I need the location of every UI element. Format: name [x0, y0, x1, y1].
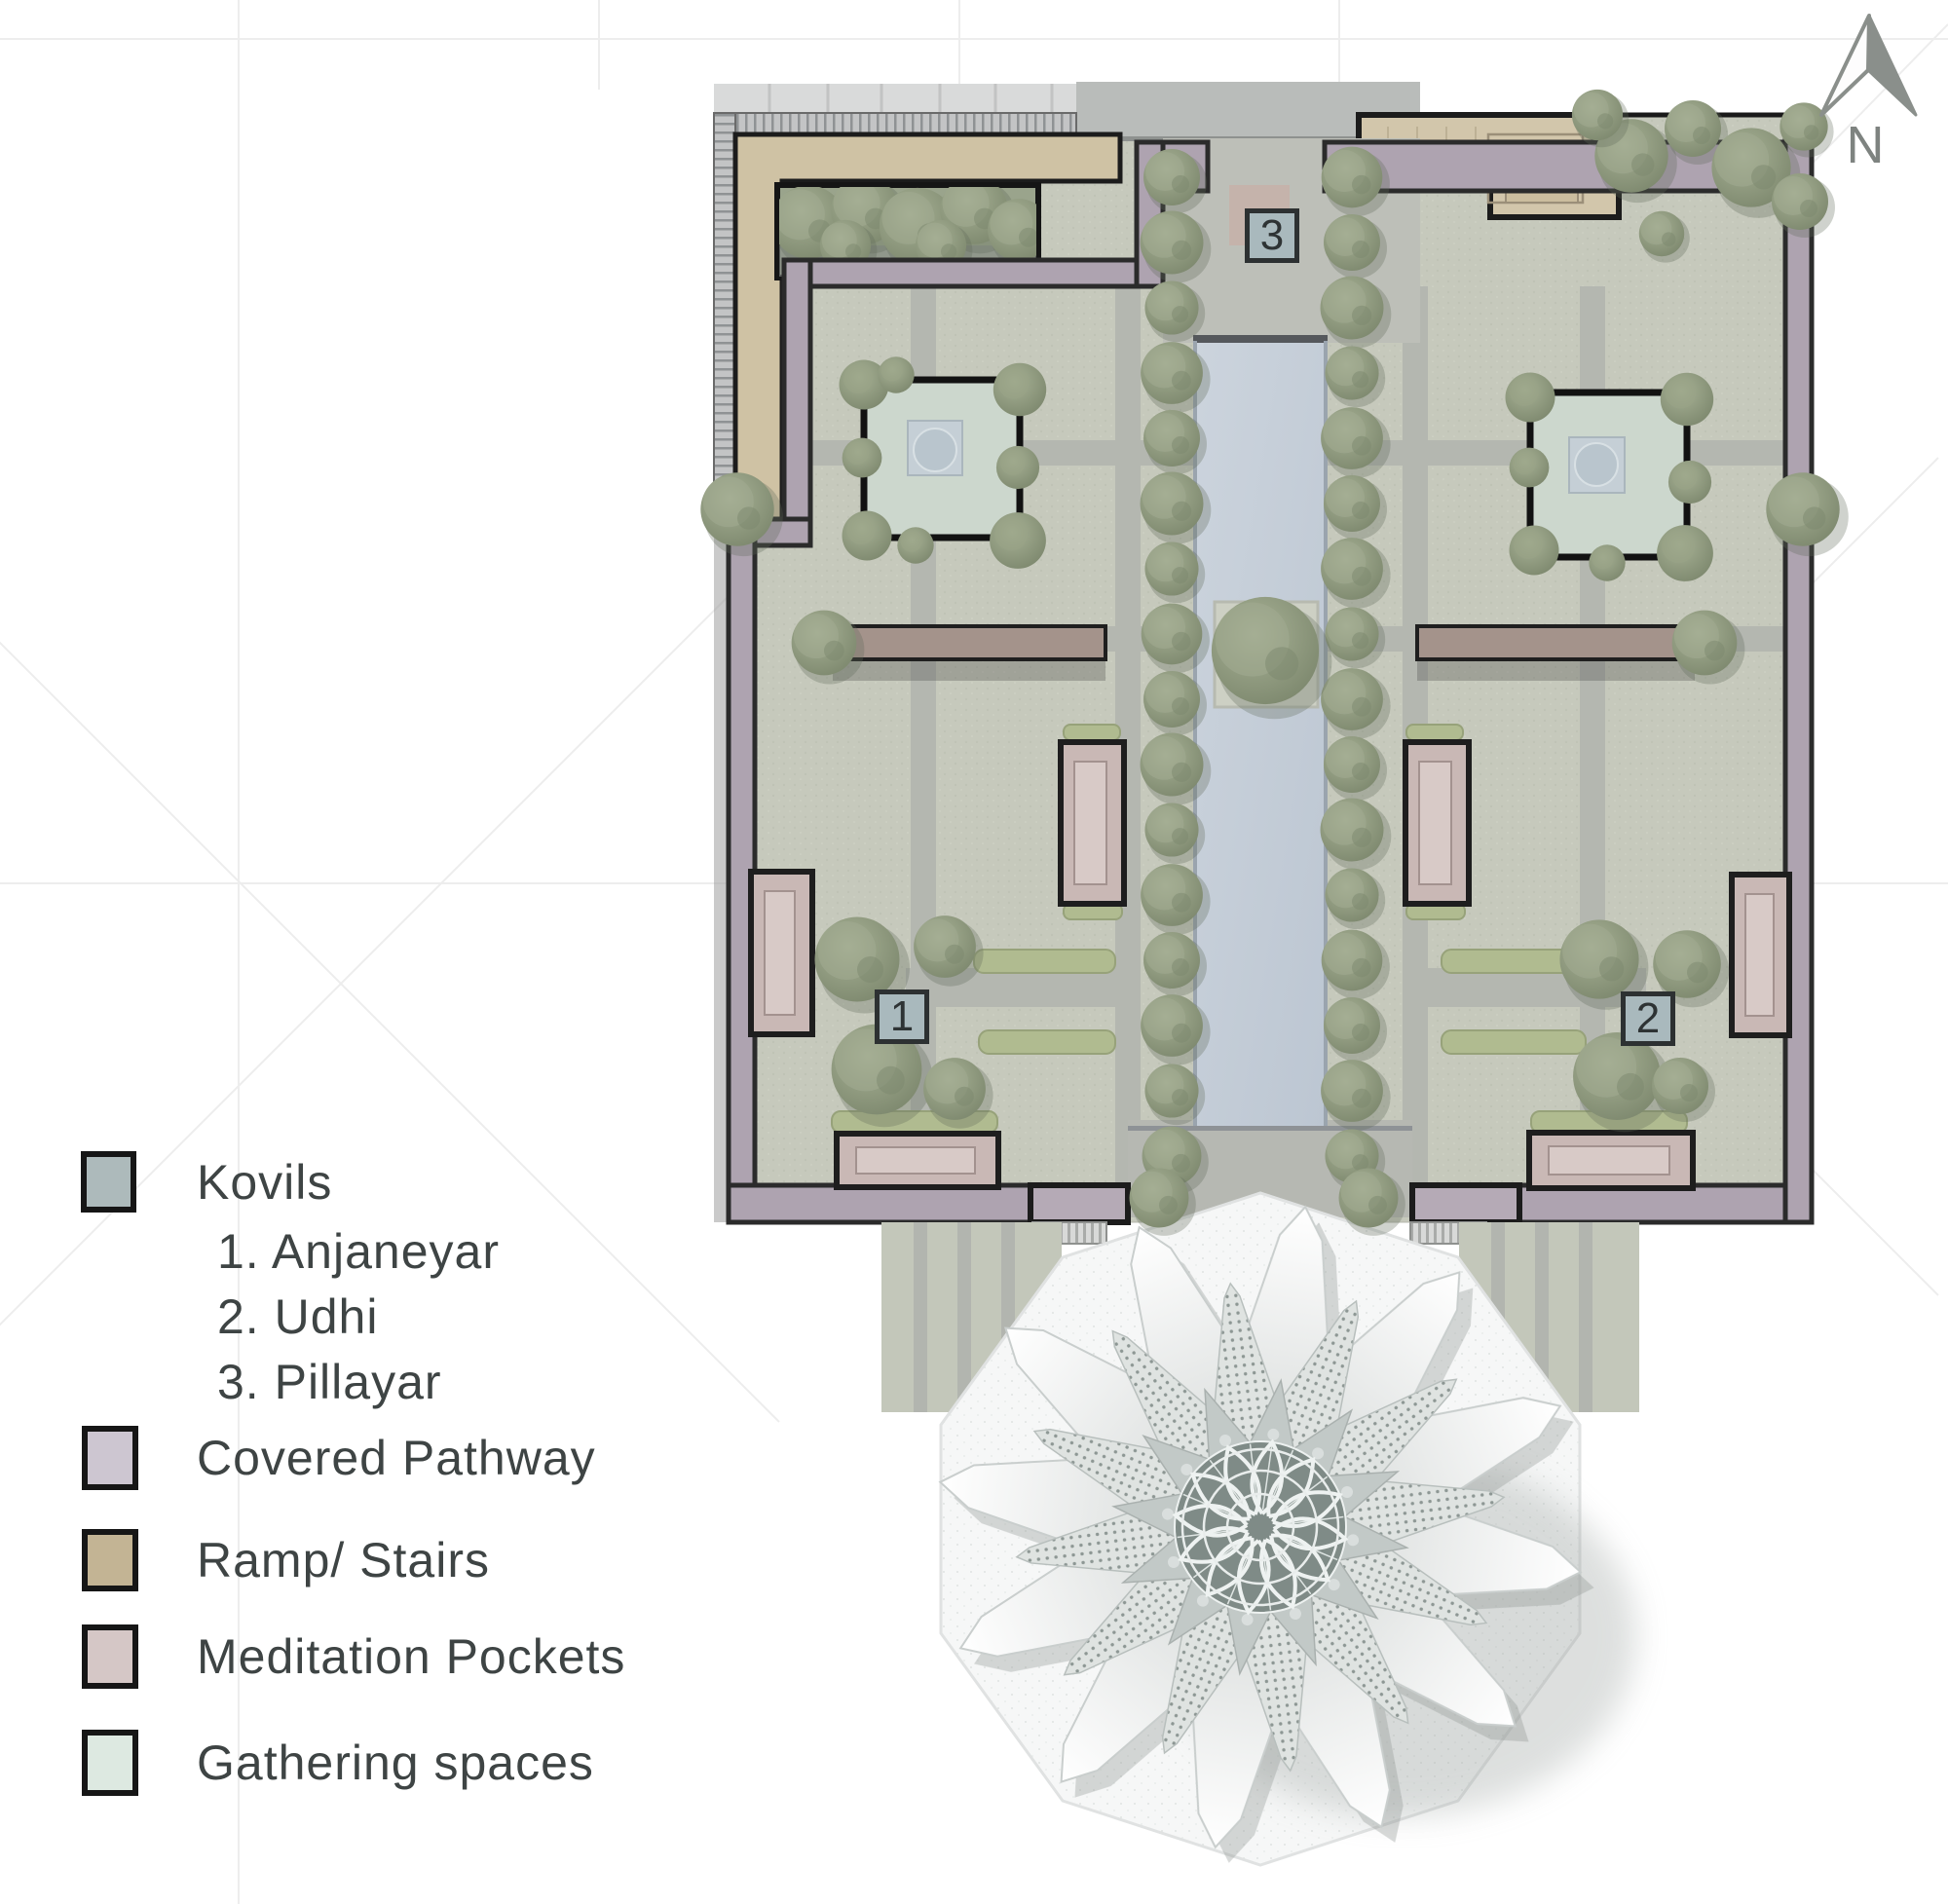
kovil-item-3: 3. Pillayar [217, 1354, 442, 1410]
site-plan-page: N 1 2 3 Kovils 1. Anjaneyar 2. Udhi 3. P… [0, 0, 1948, 1904]
kovil-marker-2: 2 [1621, 991, 1675, 1046]
legend: Kovils 1. Anjaneyar 2. Udhi 3. Pillayar … [0, 0, 682, 1904]
kovil-marker-3: 3 [1245, 208, 1299, 263]
legend-row-gathering-spaces: Gathering spaces [82, 1730, 594, 1796]
legend-row-meditation-pockets: Meditation Pockets [82, 1624, 625, 1689]
gathering-spaces-label: Gathering spaces [197, 1735, 594, 1791]
ramp-stairs-swatch [82, 1529, 138, 1591]
north-arrow: N [1797, 6, 1933, 176]
north-label: N [1797, 115, 1933, 175]
meditation-pockets-label: Meditation Pockets [197, 1628, 625, 1685]
gathering-pavilion-right [1530, 392, 1687, 557]
kovil-item-1: 1. Anjaneyar [217, 1223, 500, 1280]
north-arrow-icon [1797, 6, 1933, 123]
kovil-marker-1: 1 [875, 989, 929, 1044]
pergola-left [833, 626, 1105, 681]
legend-row-kovils: Kovils [81, 1151, 332, 1213]
meditation-pockets-swatch [82, 1624, 138, 1689]
legend-row-covered-pathway: Covered Pathway [82, 1426, 596, 1490]
legend-row-ramp-stairs: Ramp/ Stairs [82, 1529, 490, 1591]
pergola-right [1417, 626, 1695, 681]
ramp-stairs-label: Ramp/ Stairs [197, 1532, 490, 1588]
gathering-spaces-swatch [82, 1730, 138, 1796]
gathering-pavilion-left [864, 380, 1020, 538]
kovils-label: Kovils [197, 1154, 332, 1211]
kovil-item-2: 2. Udhi [217, 1288, 378, 1345]
covered-pathway-swatch [82, 1426, 138, 1490]
covered-pathway-label: Covered Pathway [197, 1430, 596, 1486]
kovils-swatch [81, 1151, 136, 1213]
